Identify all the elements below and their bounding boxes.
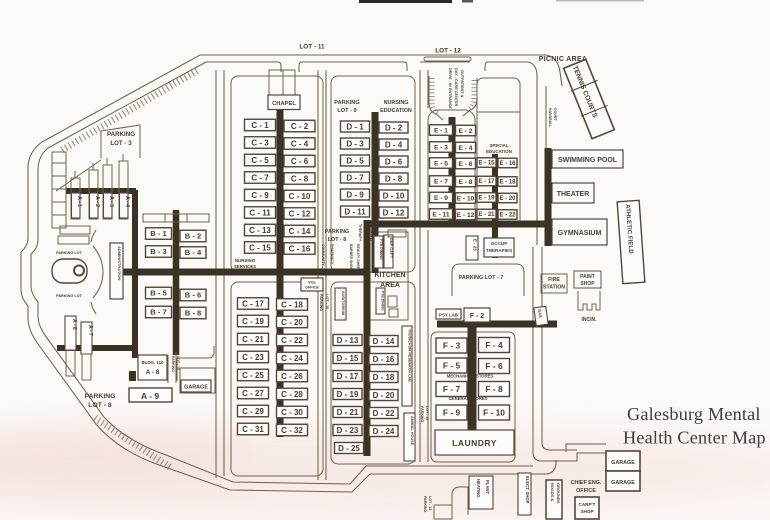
svg-text:D - 9: D - 9 (346, 190, 364, 199)
svg-text:CHIEF ENG.: CHIEF ENG. (571, 480, 602, 486)
svg-text:LOT - 10: LOT - 10 (325, 294, 329, 309)
svg-text:E - 17: E - 17 (478, 179, 495, 185)
svg-text:C - 7: C - 7 (251, 173, 269, 182)
svg-text:A - 2: A - 2 (94, 196, 100, 207)
svg-text:C - 16: C - 16 (289, 244, 311, 253)
svg-text:F - 9: F - 9 (443, 408, 461, 418)
svg-text:ELECT. SHOP: ELECT. SHOP (525, 476, 530, 504)
svg-text:PARKING LOT: PARKING LOT (56, 294, 83, 298)
svg-text:D - 11: D - 11 (344, 207, 366, 216)
svg-text:C - 23: C - 23 (242, 353, 264, 362)
svg-text:DRIVE - IN ENTRANCE: DRIVE - IN ENTRANCE (448, 68, 452, 109)
svg-text:C - 9: C - 9 (251, 191, 269, 200)
svg-text:E - 4: E - 4 (459, 145, 473, 152)
svg-text:PARKING LOT - 7: PARKING LOT - 7 (459, 275, 504, 281)
svg-text:E - 7: E - 7 (434, 178, 448, 185)
svg-text:LAUNDRY: LAUNDRY (452, 438, 497, 448)
svg-text:B - 1: B - 1 (150, 229, 167, 238)
svg-text:CHAPEL: CHAPEL (272, 101, 296, 107)
svg-text:D - 14: D - 14 (373, 337, 395, 346)
svg-text:D - 2: D - 2 (385, 123, 403, 132)
svg-text:C - 15: C - 15 (249, 243, 271, 252)
svg-text:E - 18: E - 18 (499, 180, 516, 186)
svg-text:C - 6: C - 6 (291, 157, 309, 166)
svg-text:EMP CAF'T: EMP CAF'T (389, 238, 393, 259)
svg-text:C - 3: C - 3 (251, 138, 269, 147)
svg-text:E - 9: E - 9 (434, 195, 448, 202)
svg-text:D - 6: D - 6 (385, 157, 403, 166)
svg-text:D - 18: D - 18 (373, 373, 395, 382)
svg-text:F - 7: F - 7 (443, 384, 461, 394)
svg-text:B - 8: B - 8 (185, 309, 201, 318)
svg-text:E - 8: E - 8 (459, 179, 473, 186)
svg-text:E - 11: E - 11 (432, 211, 450, 218)
svg-text:KITCHEN: KITCHEN (374, 272, 405, 279)
svg-text:C - 20: C - 20 (281, 318, 303, 327)
svg-text:AUDITORIUM: AUDITORIUM (341, 291, 345, 315)
svg-text:F - 8: F - 8 (485, 384, 503, 394)
svg-text:COMMUNITY: COMMUNITY (321, 244, 325, 266)
svg-text:C - 27: C - 27 (242, 389, 264, 398)
svg-text:EDUCATION: EDUCATION (486, 149, 512, 154)
svg-text:A - 4: A - 4 (124, 196, 130, 207)
svg-text:F - 3: F - 3 (443, 341, 461, 351)
svg-text:VOL: VOL (308, 281, 316, 285)
svg-text:NURSING: NURSING (384, 100, 409, 106)
svg-text:HEATING: HEATING (476, 479, 481, 498)
svg-text:B - 5: B - 5 (150, 289, 167, 298)
svg-text:PLANT: PLANT (485, 480, 490, 494)
svg-text:D - 21: D - 21 (337, 408, 359, 417)
svg-text:PARKING: PARKING (423, 496, 427, 513)
svg-text:OUTPATIENT &: OUTPATIENT & (460, 70, 464, 98)
svg-text:C - 13: C - 13 (249, 226, 271, 235)
svg-text:D - 3: D - 3 (346, 139, 364, 148)
svg-text:NURSING: NURSING (235, 258, 256, 263)
svg-text:INCIN.: INCIN. (582, 317, 598, 323)
svg-text:D - 24: D - 24 (373, 427, 395, 436)
svg-text:D - 13: D - 13 (337, 336, 359, 345)
svg-text:D - 22: D - 22 (373, 409, 395, 418)
svg-text:D - 4: D - 4 (385, 140, 403, 149)
svg-text:C - 26: C - 26 (281, 372, 303, 381)
svg-text:SHOP: SHOP (580, 281, 595, 287)
svg-text:C - 4: C - 4 (291, 139, 309, 148)
svg-text:D - 10: D - 10 (383, 191, 405, 200)
svg-text:OFFICE: OFFICE (305, 286, 319, 290)
svg-text:DAY - CARE CENTER: DAY - CARE CENTER (454, 68, 458, 107)
svg-text:PHYSICAL: PHYSICAL (368, 224, 372, 243)
svg-text:C - 8: C - 8 (291, 174, 309, 183)
svg-text:LOT - 14: LOT - 14 (425, 406, 429, 420)
svg-text:D - 8: D - 8 (385, 174, 403, 183)
svg-text:BARBER SHOP: BARBER SHOP (349, 244, 353, 271)
svg-text:E - 6: E - 6 (459, 161, 473, 168)
svg-text:D - 19: D - 19 (337, 390, 359, 399)
svg-text:PARKING: PARKING (107, 131, 135, 138)
svg-text:D - 5: D - 5 (346, 156, 364, 165)
svg-text:E - 5: E - 5 (434, 160, 448, 167)
svg-text:A - 7: A - 7 (87, 325, 93, 336)
svg-text:GARAGE: GARAGE (611, 480, 635, 486)
svg-text:SWIMMING POOL: SWIMMING POOL (558, 157, 618, 164)
svg-text:C - 22: C - 22 (281, 336, 303, 345)
svg-text:E - 12: E - 12 (457, 212, 475, 219)
svg-text:D - 23: D - 23 (337, 426, 359, 435)
svg-text:D - 1: D - 1 (346, 122, 364, 131)
svg-text:MECHANICAL STORES: MECHANICAL STORES (447, 374, 494, 379)
svg-text:E - 15: E - 15 (478, 161, 495, 167)
svg-text:C - 17: C - 17 (242, 299, 264, 308)
svg-text:E - 19: E - 19 (478, 196, 495, 202)
svg-text:D - 15: D - 15 (337, 354, 359, 363)
svg-text:A - 8: A - 8 (146, 369, 160, 376)
svg-text:LOT - 8: LOT - 8 (328, 237, 347, 243)
svg-text:PTB DINING: PTB DINING (381, 291, 385, 311)
svg-text:E - 10: E - 10 (457, 195, 475, 202)
svg-text:Galesburg Mental: Galesburg Mental (627, 404, 761, 424)
svg-text:C - 21: C - 21 (242, 335, 264, 344)
svg-text:C - 1: C - 1 (251, 121, 269, 130)
svg-text:C - 14: C - 14 (289, 227, 311, 236)
svg-text:C - 32: C - 32 (281, 426, 303, 435)
svg-text:SPECIAL: SPECIAL (489, 143, 508, 148)
svg-text:PSY LAB: PSY LAB (439, 313, 458, 318)
svg-text:A - 1: A - 1 (76, 196, 82, 207)
svg-text:D - 7: D - 7 (346, 173, 364, 182)
svg-text:F - 4: F - 4 (485, 340, 503, 350)
svg-text:E - 3: E - 3 (434, 144, 448, 151)
svg-text:PHARMACY: PHARMACY (330, 244, 334, 265)
svg-text:EDUCATION: EDUCATION (380, 108, 412, 114)
svg-text:PARKING: PARKING (325, 229, 349, 235)
svg-text:HANDBALL: HANDBALL (548, 108, 552, 128)
svg-text:LOT - 8: LOT - 8 (88, 402, 112, 409)
svg-text:E - 21: E - 21 (478, 212, 495, 218)
svg-text:PARKING: PARKING (171, 356, 175, 372)
svg-text:C - 29: C - 29 (242, 407, 264, 416)
svg-text:OCCUP: OCCUP (491, 241, 508, 246)
svg-text:LOT - 9: LOT - 9 (337, 108, 356, 114)
svg-text:STATION: STATION (543, 285, 565, 291)
svg-text:B - 4: B - 4 (185, 248, 202, 257)
svg-text:C - 19: C - 19 (242, 317, 264, 326)
svg-text:E - 20: E - 20 (499, 196, 516, 202)
svg-text:A - 6: A - 6 (71, 319, 77, 330)
svg-text:OFFICE: OFFICE (576, 488, 596, 494)
svg-text:COURT: COURT (553, 108, 557, 121)
svg-text:BEAUTY SHOP: BEAUTY SHOP (356, 244, 360, 270)
svg-text:BLDG. 110: BLDG. 110 (142, 360, 165, 365)
svg-text:F - 10: F - 10 (483, 408, 505, 418)
svg-text:GARAGE: GARAGE (184, 385, 208, 391)
svg-text:C - 18: C - 18 (281, 300, 303, 309)
svg-text:C - 31: C - 31 (242, 425, 264, 434)
svg-text:LOT - 3: LOT - 3 (110, 140, 132, 147)
svg-text:A - 3: A - 3 (108, 196, 114, 207)
svg-text:B - 3: B - 3 (150, 247, 166, 256)
svg-text:E - 23: E - 23 (473, 239, 478, 251)
svg-text:THERAPIES: THERAPIES (486, 248, 512, 253)
svg-text:C - 2: C - 2 (291, 122, 309, 131)
svg-text:Health Center Map: Health Center Map (623, 428, 766, 448)
svg-text:B - 2: B - 2 (185, 232, 201, 241)
svg-text:E - 2: E - 2 (459, 128, 473, 135)
svg-text:PARKING: PARKING (334, 100, 359, 106)
svg-text:PARKING LOT: PARKING LOT (56, 251, 83, 255)
svg-text:B - 7: B - 7 (150, 308, 166, 317)
svg-text:C - 12: C - 12 (289, 209, 311, 218)
svg-text:F - 2: F - 2 (470, 313, 484, 320)
svg-text:GENERAL STORES: GENERAL STORES (449, 396, 488, 401)
svg-text:CARP'T: CARP'T (579, 502, 596, 507)
svg-text:PAINT: PAINT (580, 274, 595, 280)
svg-text:GARAGE: GARAGE (611, 460, 635, 466)
svg-text:FIRE: FIRE (548, 277, 560, 283)
svg-text:E - 22: E - 22 (499, 213, 516, 219)
svg-text:PARKING: PARKING (85, 393, 116, 400)
svg-text:ANIMAL HOUSE: ANIMAL HOUSE (410, 416, 414, 446)
svg-text:C - 25: C - 25 (242, 371, 264, 380)
svg-text:D - 25: D - 25 (338, 444, 360, 453)
svg-text:E - 1: E - 1 (434, 127, 448, 134)
svg-text:LOT - 12: LOT - 12 (428, 496, 432, 510)
svg-text:B - 6: B - 6 (185, 291, 201, 300)
svg-text:SHOP: SHOP (580, 509, 593, 514)
svg-text:SERVICES: SERVICES (234, 264, 256, 269)
svg-text:F - 6: F - 6 (485, 361, 503, 371)
svg-text:GYMNASIUM: GYMNASIUM (558, 230, 602, 237)
svg-text:C - 5: C - 5 (251, 156, 269, 165)
svg-text:PARKING: PARKING (420, 406, 424, 423)
svg-text:PTB DINING: PTB DINING (379, 239, 383, 260)
svg-text:F - 5: F - 5 (443, 361, 461, 371)
svg-text:D - 16: D - 16 (373, 355, 395, 364)
svg-text:THEATER: THEATER (557, 191, 590, 198)
svg-text:LOT - 12: LOT - 12 (435, 48, 461, 55)
svg-text:C - 28: C - 28 (281, 390, 303, 399)
svg-text:C - 10: C - 10 (289, 192, 311, 201)
svg-text:GROUNDS: GROUNDS (556, 483, 561, 504)
svg-text:ADMINISTRATION: ADMINISTRATION (117, 246, 122, 280)
svg-text:THUDICHUM RESEARCH LAB.: THUDICHUM RESEARCH LAB. (407, 329, 411, 383)
svg-text:D - 17: D - 17 (337, 372, 359, 381)
svg-text:ROADS &: ROADS & (550, 483, 555, 502)
svg-text:THERAPY: THERAPY (358, 224, 362, 242)
svg-text:C - 11: C - 11 (249, 208, 271, 217)
svg-text:C - 24: C - 24 (281, 354, 303, 363)
svg-text:A - 9: A - 9 (141, 391, 159, 401)
svg-text:PARKING: PARKING (319, 294, 323, 311)
svg-text:E - 16: E - 16 (499, 161, 516, 167)
svg-text:C - 30: C - 30 (281, 408, 303, 417)
svg-text:D - 20: D - 20 (373, 391, 395, 400)
svg-text:LOT - 11: LOT - 11 (299, 44, 325, 51)
svg-text:D - 12: D - 12 (383, 208, 405, 217)
